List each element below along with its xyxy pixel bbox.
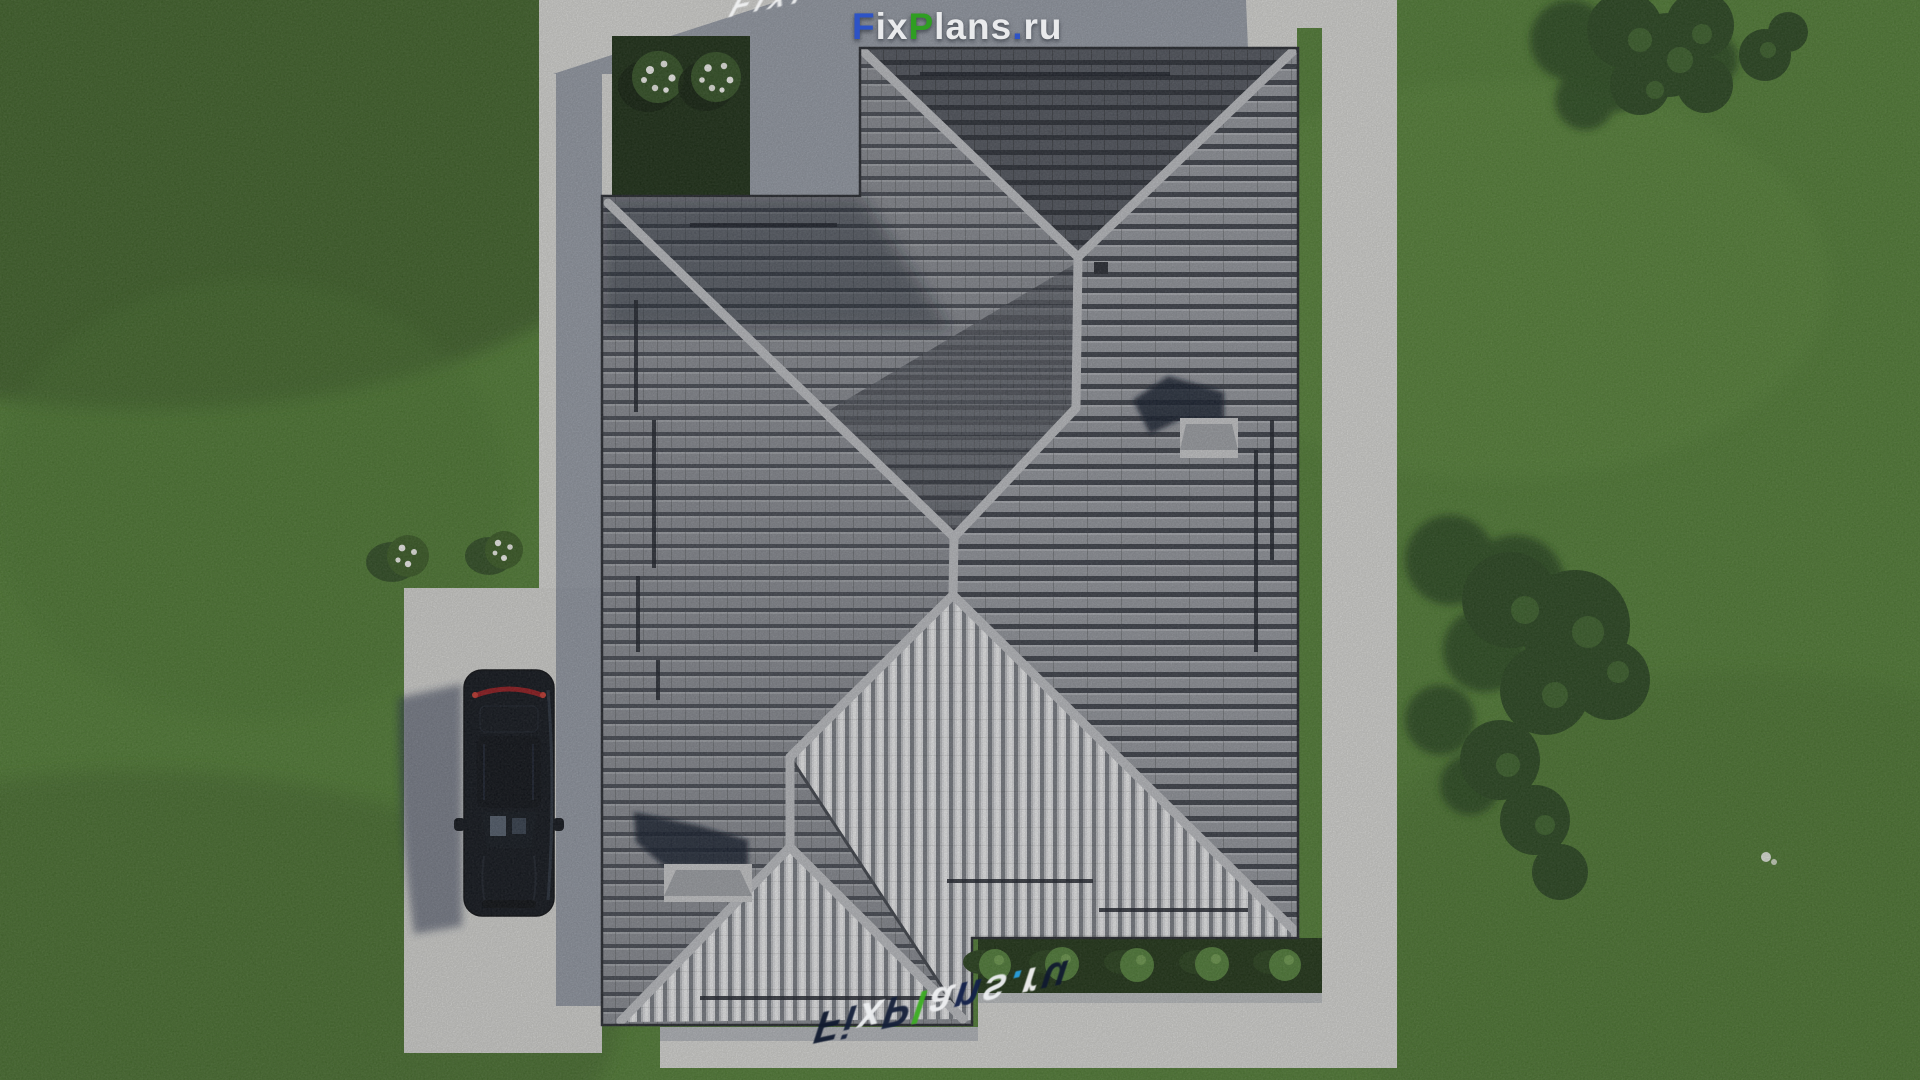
texture-grain-light [0,0,1920,1080]
render-canvas: FixPlans.ru FixPlans.ru FixPlans.ru [0,0,1920,1080]
scene-render [0,0,1920,1080]
